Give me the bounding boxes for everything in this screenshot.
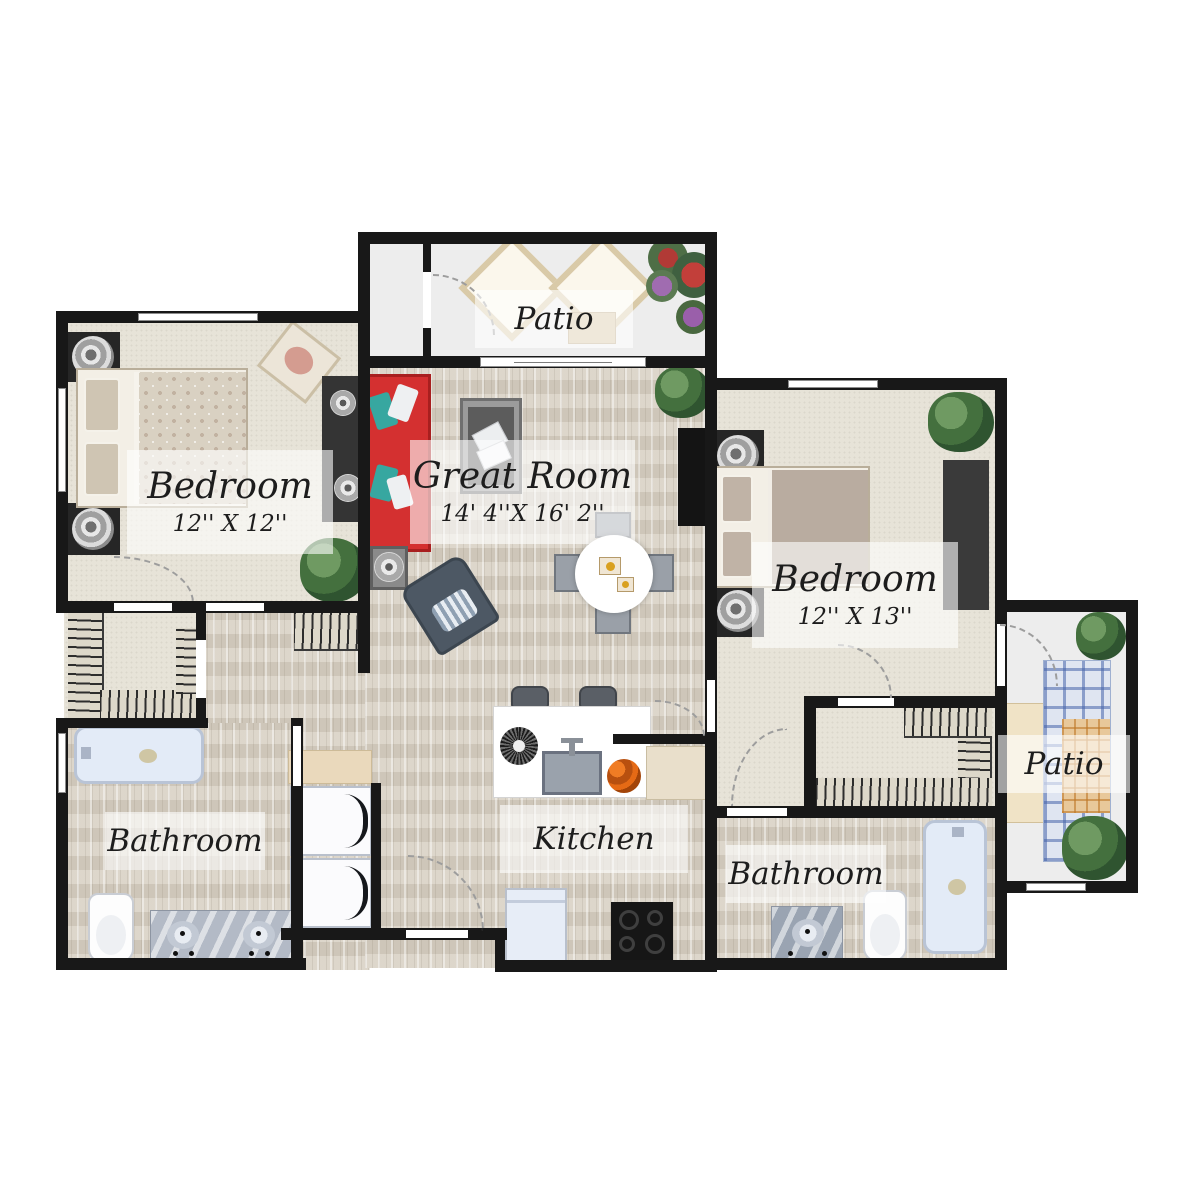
kitchen-island	[493, 706, 651, 798]
bar-stool	[511, 686, 549, 708]
fridge-line	[507, 900, 565, 903]
burner	[619, 910, 639, 930]
room-label-bedroom-left: Bedroom 12'' X 12''	[127, 450, 333, 554]
door-opening	[838, 698, 894, 706]
handle	[822, 951, 827, 956]
plant	[1062, 816, 1128, 880]
handle	[249, 951, 254, 956]
door-opening	[727, 808, 787, 816]
dining-table	[575, 535, 653, 613]
window	[788, 380, 878, 388]
door-opening	[707, 680, 715, 732]
room-label-bathroom-right: Bathroom	[726, 845, 886, 903]
wall	[358, 311, 370, 613]
flower-pot	[646, 270, 678, 302]
candle-tray	[617, 577, 634, 592]
wall	[804, 696, 995, 708]
faucet	[256, 931, 261, 936]
stove	[611, 902, 673, 962]
room-name: Patio	[515, 302, 594, 336]
door-opening	[196, 640, 206, 698]
room-dimensions: 14' 4''X 16' 2''	[440, 501, 604, 527]
art-detail	[279, 341, 319, 380]
room-name: Bathroom	[107, 824, 262, 858]
wall	[56, 718, 208, 728]
faucet	[180, 931, 185, 936]
door-opening	[114, 603, 172, 611]
faucet	[561, 738, 583, 743]
tub-drain	[948, 879, 966, 895]
closet-rack	[68, 608, 104, 720]
closet-rack	[904, 704, 992, 738]
pillow	[721, 530, 753, 578]
room-label-great-room: Great Room 14' 4''X 16' 2''	[410, 440, 635, 544]
burner	[647, 910, 663, 926]
bathtub	[74, 726, 204, 784]
pillow	[84, 442, 120, 496]
room-label-patio-right: Patio	[998, 735, 1130, 793]
room-name: Bedroom	[772, 560, 938, 600]
floor-plan: Patio Bedroom 12'' X 12'' Great Room 14'…	[0, 0, 1200, 1200]
wall	[56, 958, 306, 970]
room-name: Patio	[1025, 747, 1104, 781]
room-label-kitchen: Kitchen	[500, 805, 688, 873]
door-opening	[293, 726, 301, 786]
tub-faucet	[952, 827, 964, 837]
burner	[619, 936, 635, 952]
tub-drain	[139, 749, 157, 763]
chair-pillow	[430, 587, 480, 634]
toilet-bowl	[96, 915, 126, 955]
plant	[1076, 612, 1126, 660]
closet-rack	[294, 607, 364, 651]
door-opening	[423, 272, 431, 328]
room-label-bedroom-right: Bedroom 12'' X 13''	[752, 542, 958, 648]
wall	[705, 958, 1007, 970]
entry-door-opening	[406, 930, 468, 938]
toilet	[88, 893, 134, 963]
sliding-door	[480, 357, 646, 367]
room-dimensions: 12'' X 12''	[173, 511, 288, 537]
wall	[358, 601, 370, 673]
fruit-bowl	[607, 759, 641, 793]
bar-stool	[579, 686, 617, 708]
handle	[265, 951, 270, 956]
candle	[606, 562, 615, 571]
faucet	[805, 929, 810, 934]
room-name: Great Room	[413, 457, 632, 497]
room-dimensions: 12'' X 13''	[798, 604, 913, 630]
door-opening	[206, 603, 264, 611]
candle	[622, 581, 629, 588]
wall	[804, 696, 816, 818]
dryer-door	[342, 866, 368, 920]
window	[1026, 883, 1086, 891]
wall	[495, 960, 713, 972]
decor-plate	[374, 552, 404, 582]
pillow	[84, 378, 120, 432]
wall	[705, 232, 717, 972]
wall	[995, 378, 1007, 612]
kitchen-counter	[646, 746, 706, 800]
speaker	[72, 508, 114, 550]
plate-center	[513, 740, 525, 752]
window	[58, 388, 66, 492]
room-label-bathroom-left: Bathroom	[105, 812, 265, 870]
room-name: Bedroom	[147, 467, 313, 507]
window	[58, 733, 66, 793]
handle	[173, 951, 178, 956]
bathroom-vanity	[150, 910, 292, 962]
room-name: Kitchen	[533, 822, 654, 856]
tub-faucet	[81, 747, 91, 759]
handle	[189, 951, 194, 956]
bathtub	[923, 820, 987, 954]
burner	[645, 934, 665, 954]
handle	[788, 951, 793, 956]
room-label-patio-top: Patio	[475, 290, 633, 348]
pillow	[721, 475, 753, 523]
decor-plate	[330, 390, 356, 416]
decor-plate	[500, 727, 538, 765]
wall	[371, 783, 381, 935]
candle-tray	[599, 557, 621, 575]
plant	[655, 366, 711, 418]
bathroom-vanity	[771, 906, 843, 962]
room-name: Bathroom	[728, 857, 883, 891]
tv-console	[678, 428, 706, 526]
toilet-bowl	[870, 914, 900, 956]
wall	[995, 600, 1138, 612]
wall	[358, 232, 717, 244]
plant	[928, 392, 994, 452]
kitchen-sink	[542, 751, 602, 795]
window	[138, 313, 258, 321]
washer-door	[342, 794, 368, 848]
refrigerator	[505, 888, 567, 962]
